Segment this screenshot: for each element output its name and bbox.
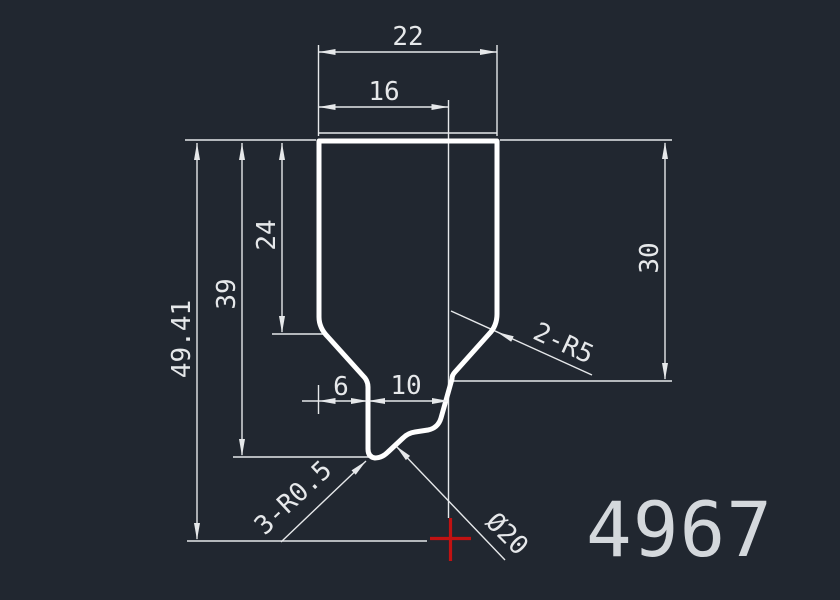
arrowhead	[351, 398, 368, 404]
dim-inner-width: 16	[368, 77, 399, 107]
dim-tip-diameter: Ø20	[479, 507, 533, 561]
arrowhead	[662, 142, 668, 159]
drawing-number-label: 4967	[586, 485, 773, 574]
point-marker-cross	[430, 518, 471, 561]
dim-overall-height: 49.41	[167, 300, 197, 378]
dim-neck-offset: 6	[333, 372, 349, 402]
arrowhead	[279, 143, 285, 160]
arrowhead	[239, 143, 245, 160]
arrowhead	[239, 439, 245, 456]
dimension-texts: 22 16 49.41 39 24 30 6 10 2-R5 3-R0.5 Ø2…	[167, 22, 665, 562]
part-profile	[319, 141, 497, 458]
leader-arrowhead	[396, 446, 410, 460]
dim-right-side-height: 30	[635, 242, 665, 273]
cad-viewport: 22 16 49.41 39 24 30 6 10 2-R5 3-R0.5 Ø2…	[0, 0, 840, 600]
arrowhead	[662, 363, 668, 380]
dim-overall-width: 22	[392, 22, 423, 52]
leader-arrowhead	[497, 332, 514, 342]
dimension-lines	[185, 45, 672, 560]
arrowhead	[368, 398, 385, 404]
arrowhead	[319, 49, 336, 55]
arrowhead	[194, 143, 200, 160]
dim-height-to-tip: 39	[212, 278, 242, 309]
arrowhead	[194, 523, 200, 540]
dimension-arrowheads	[194, 49, 668, 540]
arrowhead	[432, 104, 449, 110]
dim-height-to-shoulder: 24	[252, 219, 282, 250]
cad-canvas[interactable]: 22 16 49.41 39 24 30 6 10 2-R5 3-R0.5 Ø2…	[0, 0, 840, 600]
arrowhead	[480, 49, 497, 55]
arrowhead	[279, 316, 285, 333]
arrowhead	[319, 104, 336, 110]
dim-tip-fillets: 3-R0.5	[249, 455, 338, 541]
dim-neck-width: 10	[390, 371, 421, 401]
